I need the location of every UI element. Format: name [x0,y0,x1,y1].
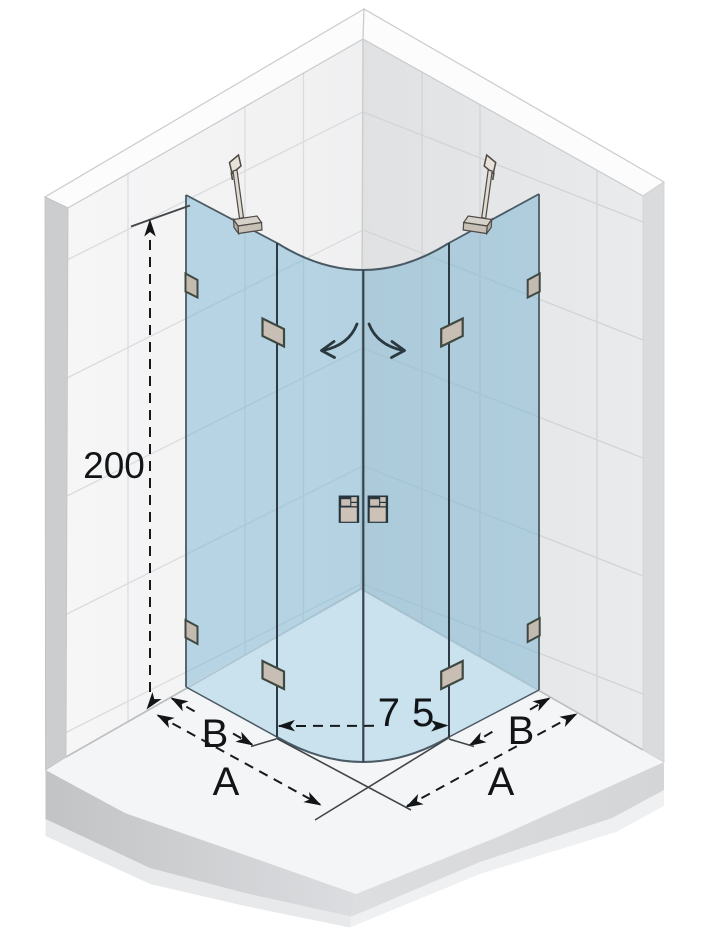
svg-text:B: B [202,712,229,756]
svg-text:200: 200 [83,445,145,486]
svg-text:B: B [508,709,535,753]
svg-text:75: 75 [378,691,447,735]
svg-text:A: A [213,760,240,804]
svg-text:A: A [488,760,515,804]
